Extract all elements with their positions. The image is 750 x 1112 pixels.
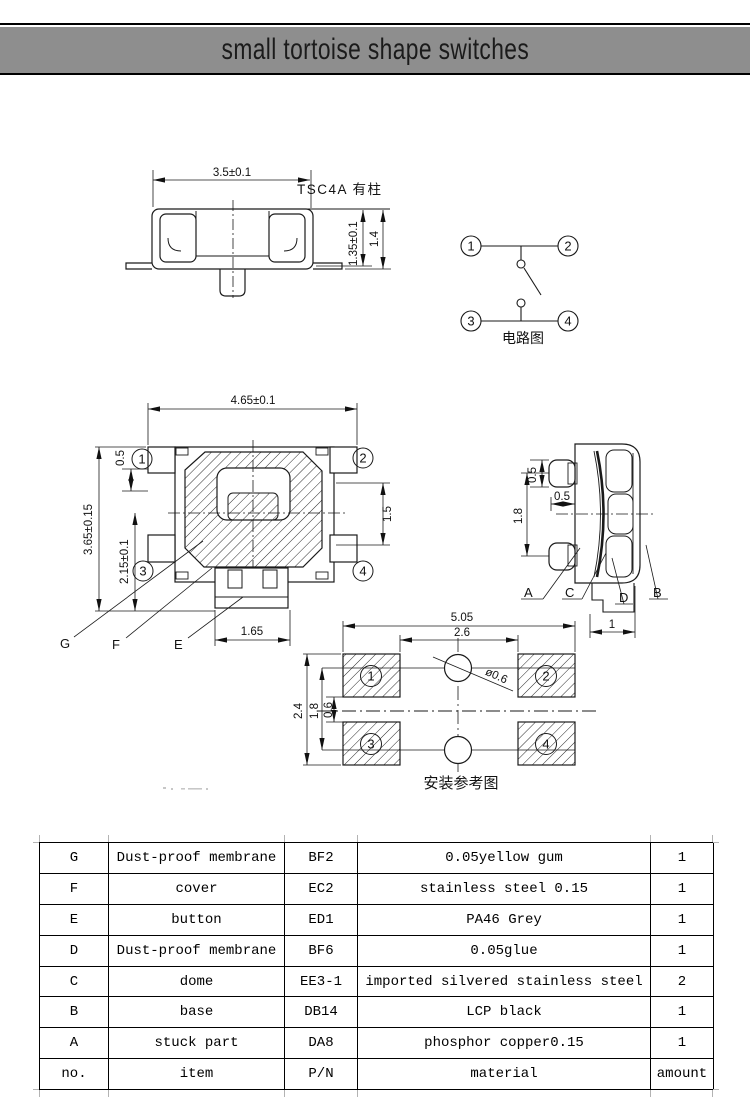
top-view-width-dimension — [148, 403, 357, 445]
top-view-button-dim-text: 1.5 — [382, 506, 394, 522]
table-row-cell: 1 — [651, 904, 714, 935]
table-row: BbaseDB14LCP black1 — [40, 997, 714, 1028]
side-view-total-height-dim-text: 1.4 — [369, 230, 381, 247]
table-row-cell: 1 — [651, 843, 714, 874]
right-side-view-drawing: 0.5 1.8 0.5 1 A C D B — [513, 444, 668, 638]
pcb-total-height-dim-text: 2.4 — [293, 702, 305, 719]
model-label: TSC4A 有柱 — [297, 182, 383, 197]
table-header-row-cell: material — [358, 1059, 651, 1090]
table-row-cell: DA8 — [285, 1028, 358, 1059]
table-row: Astuck partDA8phosphor copper0.151 — [40, 1028, 714, 1059]
table-header-row-cell: no. — [40, 1059, 109, 1090]
pcb-total-width-dim-text: 5.05 — [451, 612, 473, 624]
table-row-cell: 1 — [651, 1028, 714, 1059]
table-row-cell: 1 — [651, 997, 714, 1028]
top-view-terminal-1: 1 — [138, 452, 145, 467]
table-row-cell: stuck part — [109, 1028, 285, 1059]
table-row-cell: dome — [109, 966, 285, 997]
table-row-cell: BF6 — [285, 935, 358, 966]
table-row-cell: B — [40, 997, 109, 1028]
part-label-C: C — [565, 585, 574, 600]
circuit-terminal-2: 2 — [564, 239, 571, 254]
table-row: EbuttonED1PA46 Grey1 — [40, 904, 714, 935]
pcb-pad-1: 1 — [367, 669, 374, 684]
top-view-terminal-2: 2 — [359, 451, 366, 466]
drawing-canvas: 3.5±0.1 TSC4A 有柱 1.35±0.1 1.4 — [0, 0, 750, 842]
table-row-cell: cover — [109, 873, 285, 904]
part-label-G: G — [60, 636, 70, 651]
circuit-caption: 电路图 — [502, 330, 544, 346]
table-row-cell: 1 — [651, 873, 714, 904]
table-row-cell: base — [109, 997, 285, 1028]
table-row-cell: F — [40, 873, 109, 904]
table-row-cell: button — [109, 904, 285, 935]
table-row-cell: A — [40, 1028, 109, 1059]
right-view-protrusion-dim-text: 0.5 — [554, 491, 570, 503]
table-header-row-cell: P/N — [285, 1059, 358, 1090]
right-view-foot-dim-text: 1 — [609, 619, 615, 631]
table-row: FcoverEC2stainless steel 0.151 — [40, 873, 714, 904]
table-header-row: no.itemP/Nmaterialamount — [40, 1059, 714, 1090]
pcb-inner-width-dim-text: 2.6 — [454, 627, 470, 639]
table-row-cell: D — [40, 935, 109, 966]
pcb-layout-drawing: 1 2 3 4 5.05 — [163, 612, 600, 792]
table-row-cell: E — [40, 904, 109, 935]
table-row-cell: 0.05glue — [358, 935, 651, 966]
table-row-cell: BF2 — [285, 843, 358, 874]
table-row: DDust-proof membraneBF60.05glue1 — [40, 935, 714, 966]
circuit-terminal-3: 3 — [467, 314, 474, 329]
table-header-row-cell: amount — [651, 1059, 714, 1090]
right-view-terminal-height-dim-text: 0.5 — [527, 467, 539, 483]
table-row-cell: ED1 — [285, 904, 358, 935]
pcb-pad-2: 2 — [542, 669, 549, 684]
table-header-row-cell: item — [109, 1059, 285, 1090]
pcb-pad-4: 4 — [542, 737, 549, 752]
top-view-terminal-4: 4 — [359, 564, 366, 579]
table-row-cell: Dust-proof membrane — [109, 935, 285, 966]
right-view-pitch-dim-text: 1.8 — [513, 508, 525, 524]
side-view-drawing: 3.5±0.1 TSC4A 有柱 1.35±0.1 1.4 — [126, 167, 391, 298]
part-label-B: B — [653, 585, 662, 600]
part-label-D: D — [619, 590, 628, 605]
parts-table-body: GDust-proof membraneBF20.05yellow gum1Fc… — [40, 843, 714, 1090]
top-view-drawing: 4.65±0.1 — [60, 395, 394, 652]
parts-table: GDust-proof membraneBF20.05yellow gum1Fc… — [39, 842, 714, 1090]
table-row: GDust-proof membraneBF20.05yellow gum1 — [40, 843, 714, 874]
pcb-pad-gap-dim-text: 0.6 — [323, 702, 335, 718]
table-row: CdomeEE3-1imported silvered stainless st… — [40, 966, 714, 997]
faint-watermark — [163, 787, 208, 790]
table-row-cell: G — [40, 843, 109, 874]
circuit-diagram: 1 2 3 4 电路图 — [461, 236, 578, 346]
table-row-cell: Dust-proof membrane — [109, 843, 285, 874]
table-row-cell: DB14 — [285, 997, 358, 1028]
table-row-cell: 2 — [651, 966, 714, 997]
top-view-width-dim-text: 4.65±0.1 — [231, 395, 276, 407]
part-label-A: A — [524, 585, 533, 600]
table-row-cell: EE3-1 — [285, 966, 358, 997]
top-view-terminal-offset-dim-text: 0.5 — [115, 450, 127, 466]
side-view-body-height-dim-text: 1.35±0.1 — [348, 221, 360, 266]
pcb-hole-diameter-text: ø0.6 — [483, 666, 509, 686]
top-view-height-dim-text: 3.65±0.15 — [83, 504, 95, 555]
table-row-cell: PA46 Grey — [358, 904, 651, 935]
pcb-caption: 安装参考图 — [423, 775, 498, 792]
pcb-pad-3: 3 — [367, 737, 374, 752]
part-label-E: E — [174, 637, 183, 652]
table-row-cell: LCP black — [358, 997, 651, 1028]
part-label-F: F — [112, 637, 120, 652]
top-view-terminal-3: 3 — [139, 564, 146, 579]
table-row-cell: phosphor copper0.15 — [358, 1028, 651, 1059]
datasheet-page: small tortoise shape switches 3.5±0.1 TS… — [0, 0, 750, 1112]
top-view-lower-height-dim-text: 2.15±0.1 — [119, 539, 131, 584]
table-row-cell: EC2 — [285, 873, 358, 904]
circuit-terminal-1: 1 — [467, 239, 474, 254]
table-row-cell: 1 — [651, 935, 714, 966]
table-row-cell: 0.05yellow gum — [358, 843, 651, 874]
circuit-terminal-4: 4 — [564, 314, 571, 329]
pcb-hole-pitch-dim-text: 1.8 — [309, 703, 321, 719]
table-row-cell: stainless steel 0.15 — [358, 873, 651, 904]
side-view-width-dim-text: 3.5±0.1 — [213, 167, 251, 179]
table-row-cell: imported silvered stainless steel — [358, 966, 651, 997]
table-row-cell: C — [40, 966, 109, 997]
top-view-stem-dim-text: 1.65 — [241, 626, 263, 638]
